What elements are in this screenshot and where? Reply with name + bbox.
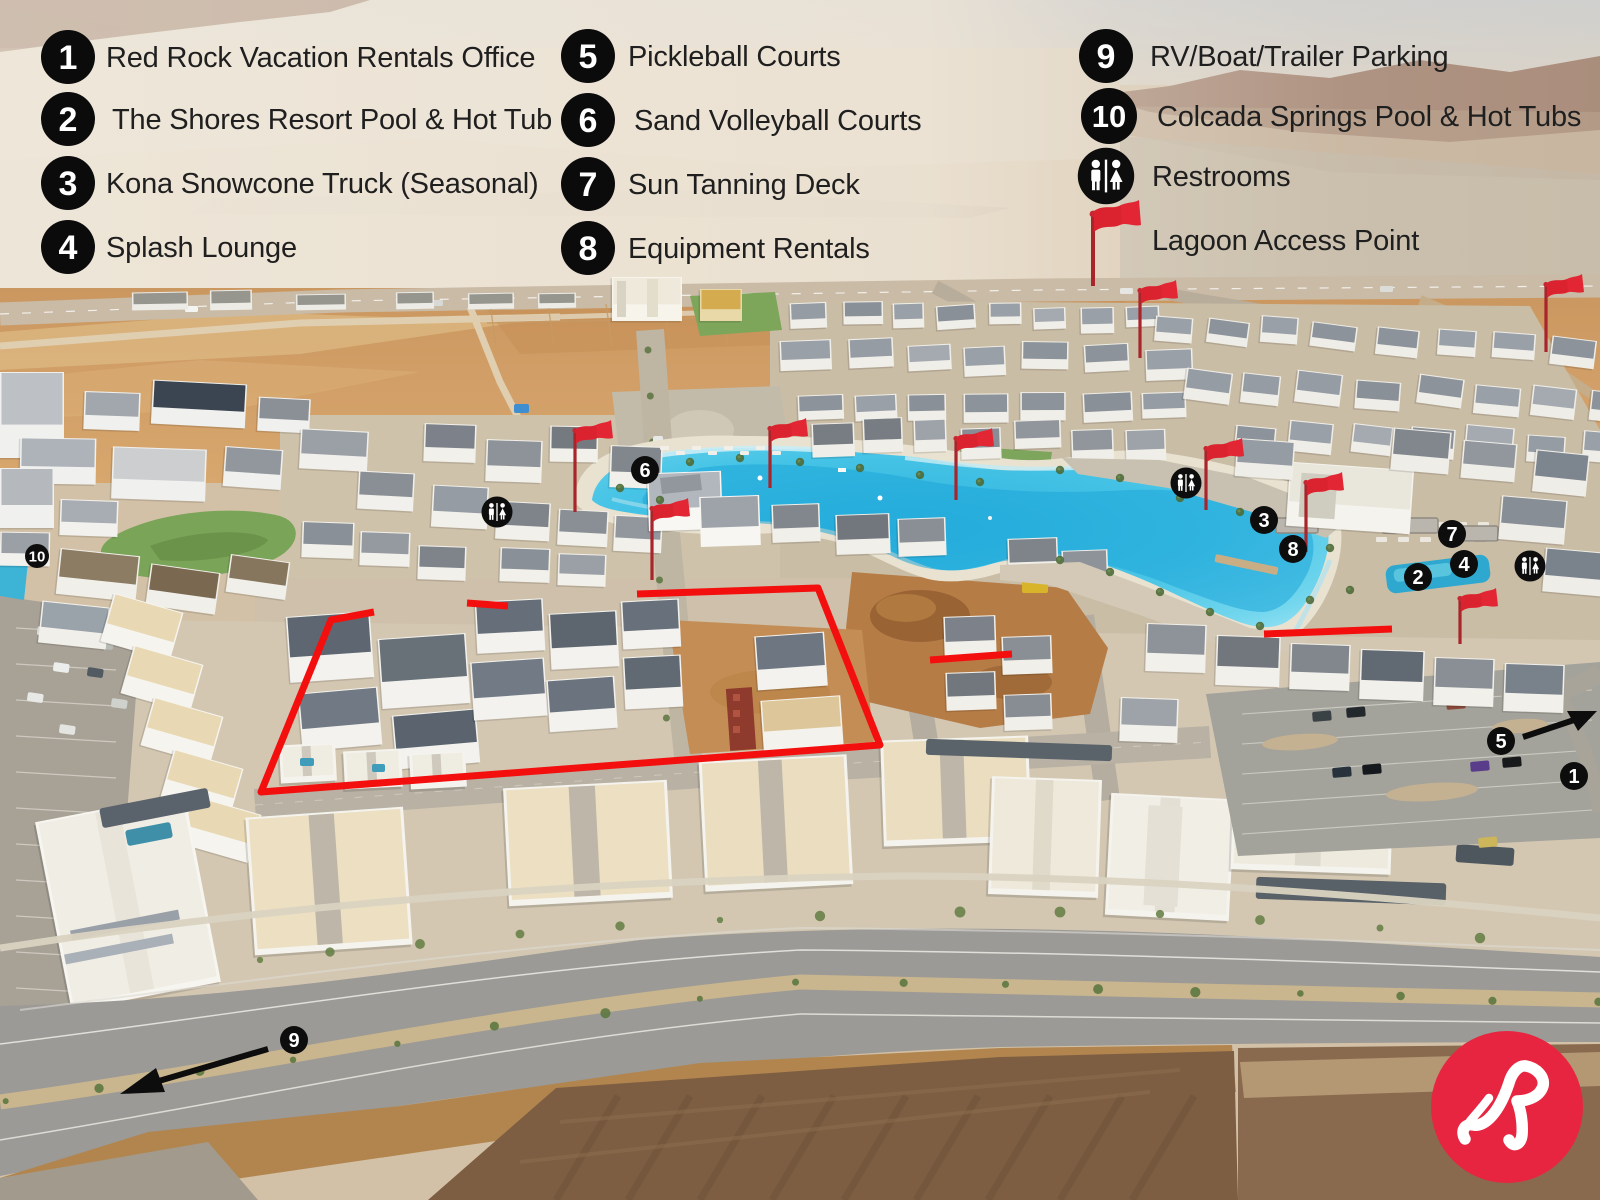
svg-text:Equipment Rentals: Equipment Rentals [628,233,870,265]
svg-text:9: 9 [1097,38,1116,76]
svg-text:3: 3 [59,165,78,203]
svg-text:Red Rock Vacation Rentals Offi: Red Rock Vacation Rentals Office [106,42,535,74]
svg-text:Splash Lounge: Splash Lounge [106,232,297,264]
svg-text:2: 2 [1412,567,1423,589]
svg-text:10: 10 [1092,99,1126,134]
svg-text:4: 4 [59,229,78,267]
svg-text:9: 9 [288,1030,299,1052]
svg-text:Colcada Springs Pool & Hot Tub: Colcada Springs Pool & Hot Tubs [1157,101,1581,133]
svg-text:7: 7 [579,166,598,204]
svg-text:8: 8 [579,230,598,268]
svg-text:8: 8 [1287,539,1298,561]
svg-text:5: 5 [1495,731,1506,753]
svg-text:The Shores Resort Pool & Hot T: The Shores Resort Pool & Hot Tub [112,104,552,136]
svg-text:1: 1 [59,39,78,77]
svg-text:2: 2 [59,101,78,139]
svg-text:5: 5 [579,38,598,76]
svg-text:Pickleball Courts: Pickleball Courts [628,41,841,73]
svg-text:1: 1 [1568,766,1579,788]
svg-text:6: 6 [639,460,650,482]
svg-text:Restrooms: Restrooms [1152,161,1290,193]
svg-text:RV/Boat/Trailer Parking: RV/Boat/Trailer Parking [1150,41,1448,73]
svg-text:4: 4 [1458,554,1470,576]
svg-text:3: 3 [1258,510,1269,532]
svg-text:Lagoon Access Point: Lagoon Access Point [1152,225,1419,257]
svg-text:7: 7 [1446,524,1457,546]
svg-text:Sand Volleyball Courts: Sand Volleyball Courts [634,105,921,137]
svg-text:10: 10 [29,548,46,565]
svg-text:6: 6 [579,102,598,140]
svg-text:Sun Tanning Deck: Sun Tanning Deck [628,169,860,201]
svg-text:Kona Snowcone Truck (Seasonal): Kona Snowcone Truck (Seasonal) [106,168,538,200]
